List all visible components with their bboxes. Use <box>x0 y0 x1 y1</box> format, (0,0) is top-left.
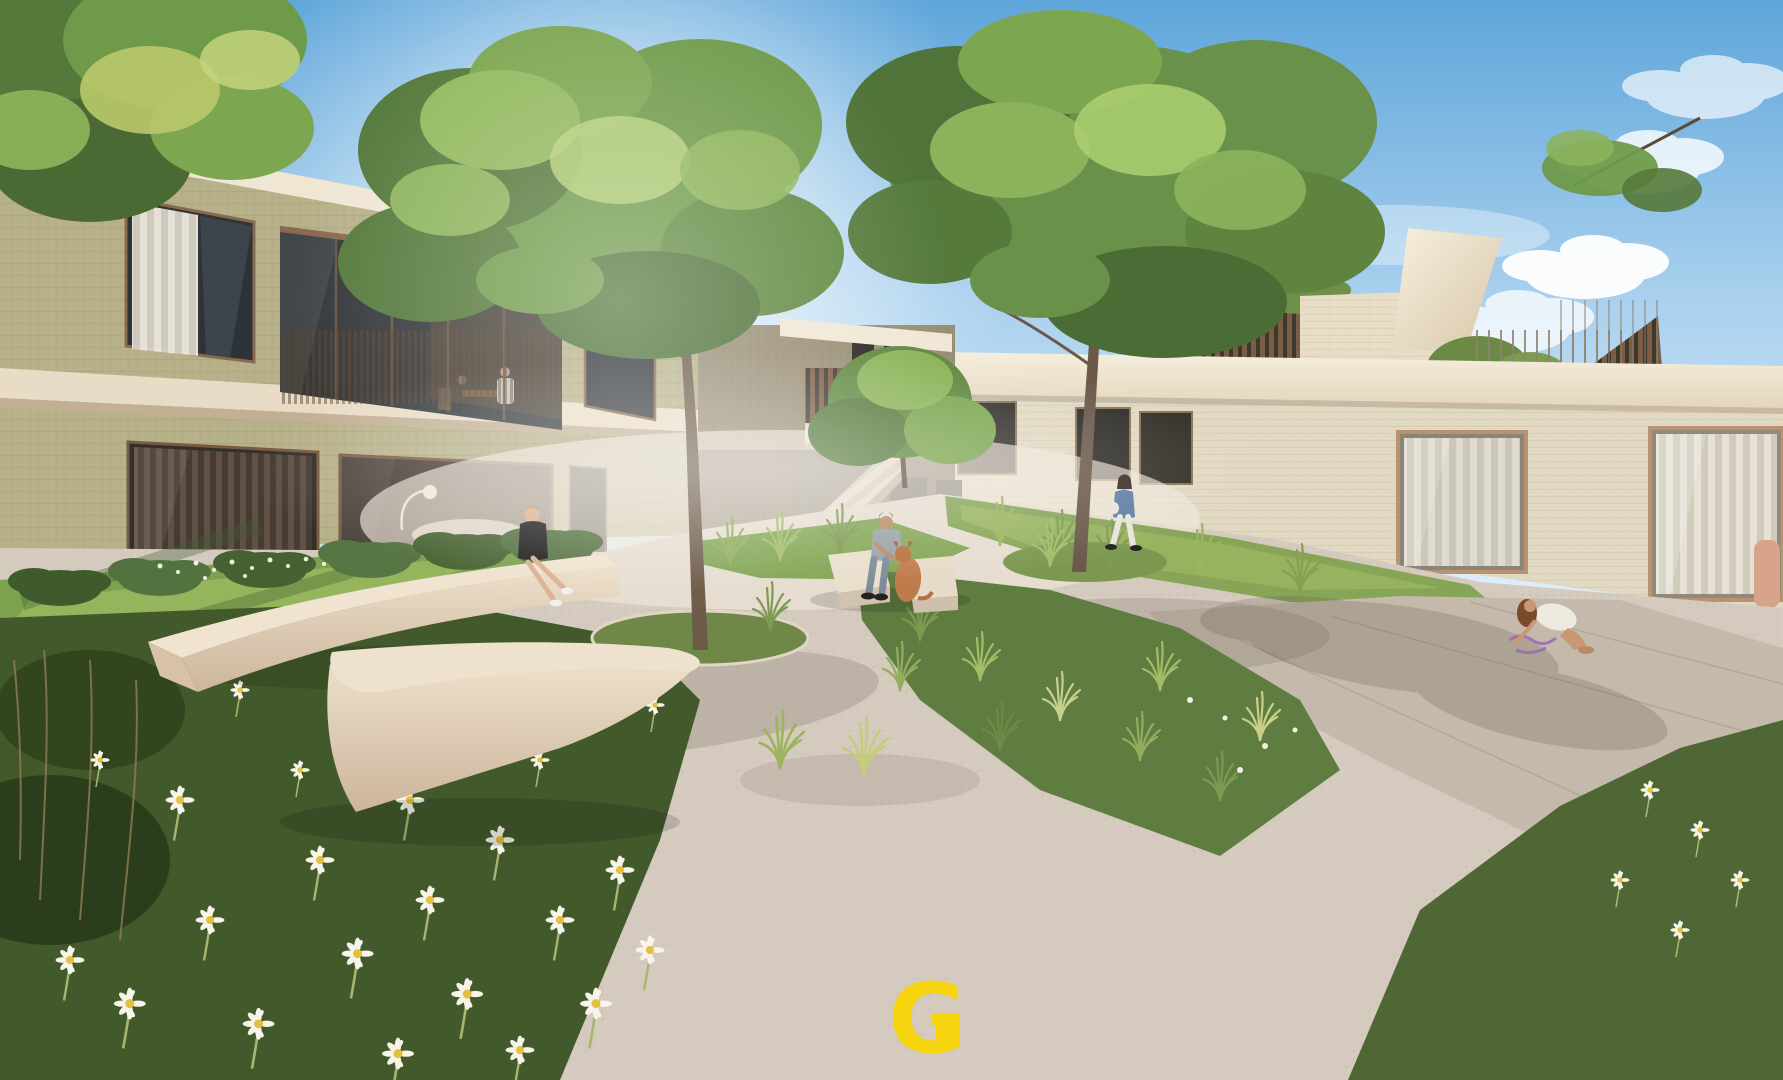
watermark-tail <box>936 1018 948 1052</box>
salmon-planter-column <box>1754 540 1780 608</box>
watermark-letter: G <box>888 963 967 1075</box>
center-haze <box>240 350 1280 590</box>
watermark-logo: G <box>888 963 967 1075</box>
large-window-1 <box>1398 432 1526 572</box>
scene-canvas: G <box>0 0 1783 1080</box>
courtyard-rendering: G <box>0 0 1783 1080</box>
upper-window-1 <box>126 198 254 362</box>
